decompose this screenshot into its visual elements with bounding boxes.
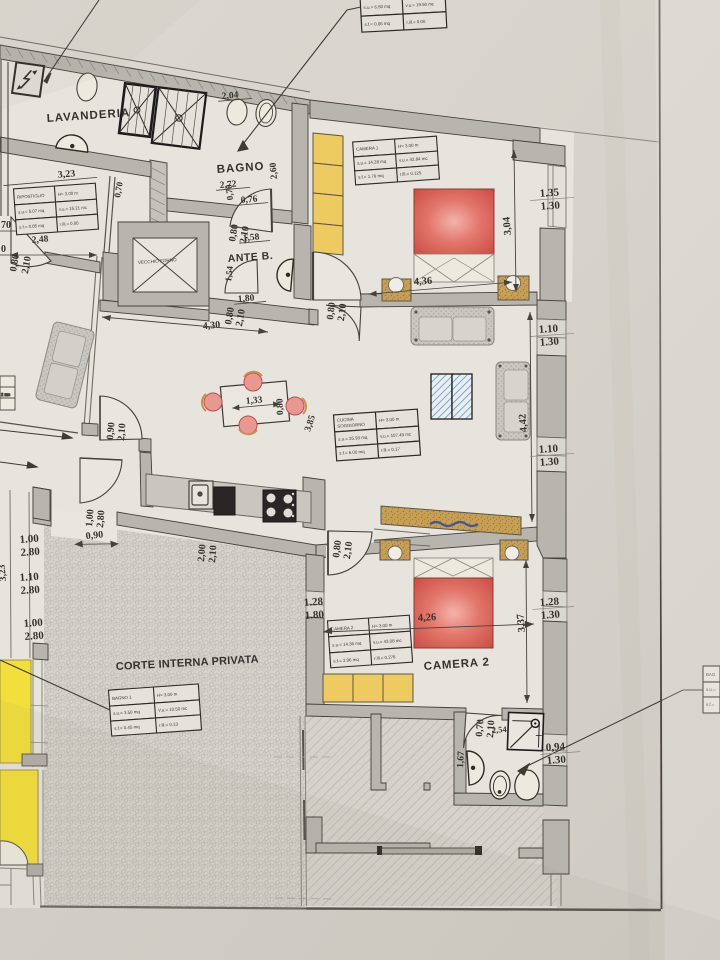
svg-text:0: 0 <box>1 244 6 255</box>
svg-text:1,67: 1,67 <box>456 751 467 768</box>
svg-text:s.u.=: s.u.= <box>706 687 716 692</box>
svg-text:2,60: 2,60 <box>269 162 280 180</box>
svg-text:4,26: 4,26 <box>418 612 437 624</box>
svg-text:r.ill.= 0.00: r.ill.= 0.00 <box>406 19 426 25</box>
svg-text:3,23: 3,23 <box>57 168 75 180</box>
svg-text:0,80: 0,80 <box>275 398 286 415</box>
svg-text:2 mc: 2 mc <box>1 392 10 397</box>
svg-text:s.f.=: s.f.= <box>706 702 715 707</box>
svg-text:2,54: 2,54 <box>491 724 507 735</box>
svg-text:1,54: 1,54 <box>223 265 235 282</box>
svg-text:1.00: 1.00 <box>19 533 40 546</box>
svg-text:1.00: 1.00 <box>23 617 44 630</box>
svg-text:1.30: 1.30 <box>540 199 561 212</box>
svg-text:2,80: 2,80 <box>95 510 107 528</box>
svg-text:2.80: 2.80 <box>20 584 41 597</box>
svg-text:2,10: 2,10 <box>116 423 128 441</box>
svg-text:0,94: 0,94 <box>545 741 566 754</box>
svg-text:2,48: 2,48 <box>31 234 49 245</box>
svg-text:2,10: 2,10 <box>342 541 355 560</box>
svg-text:0,70: 0,70 <box>224 184 235 201</box>
svg-text:2.80: 2.80 <box>20 546 41 559</box>
svg-text:1.10: 1.10 <box>538 323 559 336</box>
svg-text:1.28: 1.28 <box>303 596 324 609</box>
svg-text:1.30: 1.30 <box>539 456 560 469</box>
svg-text:1.80: 1.80 <box>304 609 325 622</box>
svg-text:4,42: 4,42 <box>517 413 530 432</box>
svg-text:BAG: BAG <box>706 672 716 677</box>
svg-text:2,10: 2,10 <box>336 303 349 322</box>
svg-text:0,90: 0,90 <box>85 529 104 542</box>
svg-text:1.30: 1.30 <box>546 754 567 767</box>
svg-text:1,33: 1,33 <box>245 395 263 406</box>
svg-text:4,36: 4,36 <box>413 276 432 288</box>
svg-text:3,23: 3,23 <box>0 564 9 582</box>
svg-text:2.80: 2.80 <box>24 630 45 643</box>
svg-text:3,04: 3,04 <box>501 216 514 236</box>
svg-text:1.10: 1.10 <box>19 571 40 584</box>
svg-text:1.30: 1.30 <box>539 336 560 349</box>
svg-text:2,10: 2,10 <box>207 545 219 563</box>
svg-text:70: 70 <box>1 220 11 231</box>
svg-text:1.35: 1.35 <box>539 186 560 199</box>
svg-text:1.10: 1.10 <box>538 443 559 456</box>
svg-text:1.30: 1.30 <box>540 609 561 622</box>
svg-text:1.28: 1.28 <box>539 596 560 609</box>
svg-text:4,30: 4,30 <box>202 319 221 332</box>
